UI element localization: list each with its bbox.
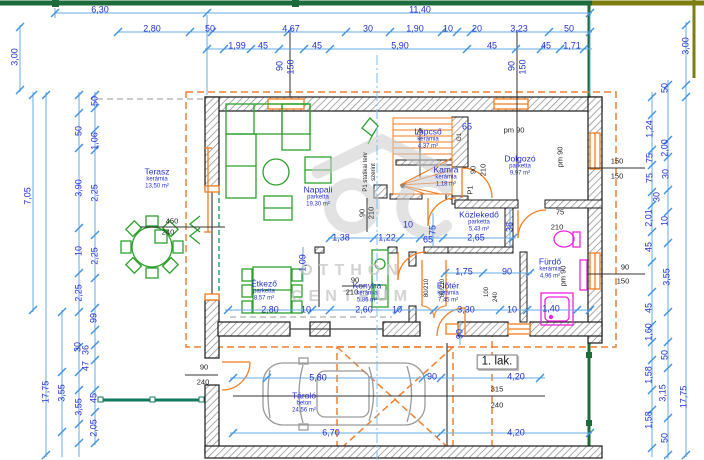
plant-chevrons-icon	[190, 216, 200, 244]
floor-plan-drawing	[0, 0, 704, 460]
bathroom-fixtures	[541, 231, 587, 325]
doors	[204, 148, 546, 390]
furniture	[121, 104, 388, 313]
overhang-dashed-gray	[97, 99, 392, 317]
floor-plan-page: OTTHON CENTRUM 1. lak. 6,3011,402,80504,…	[0, 0, 704, 460]
